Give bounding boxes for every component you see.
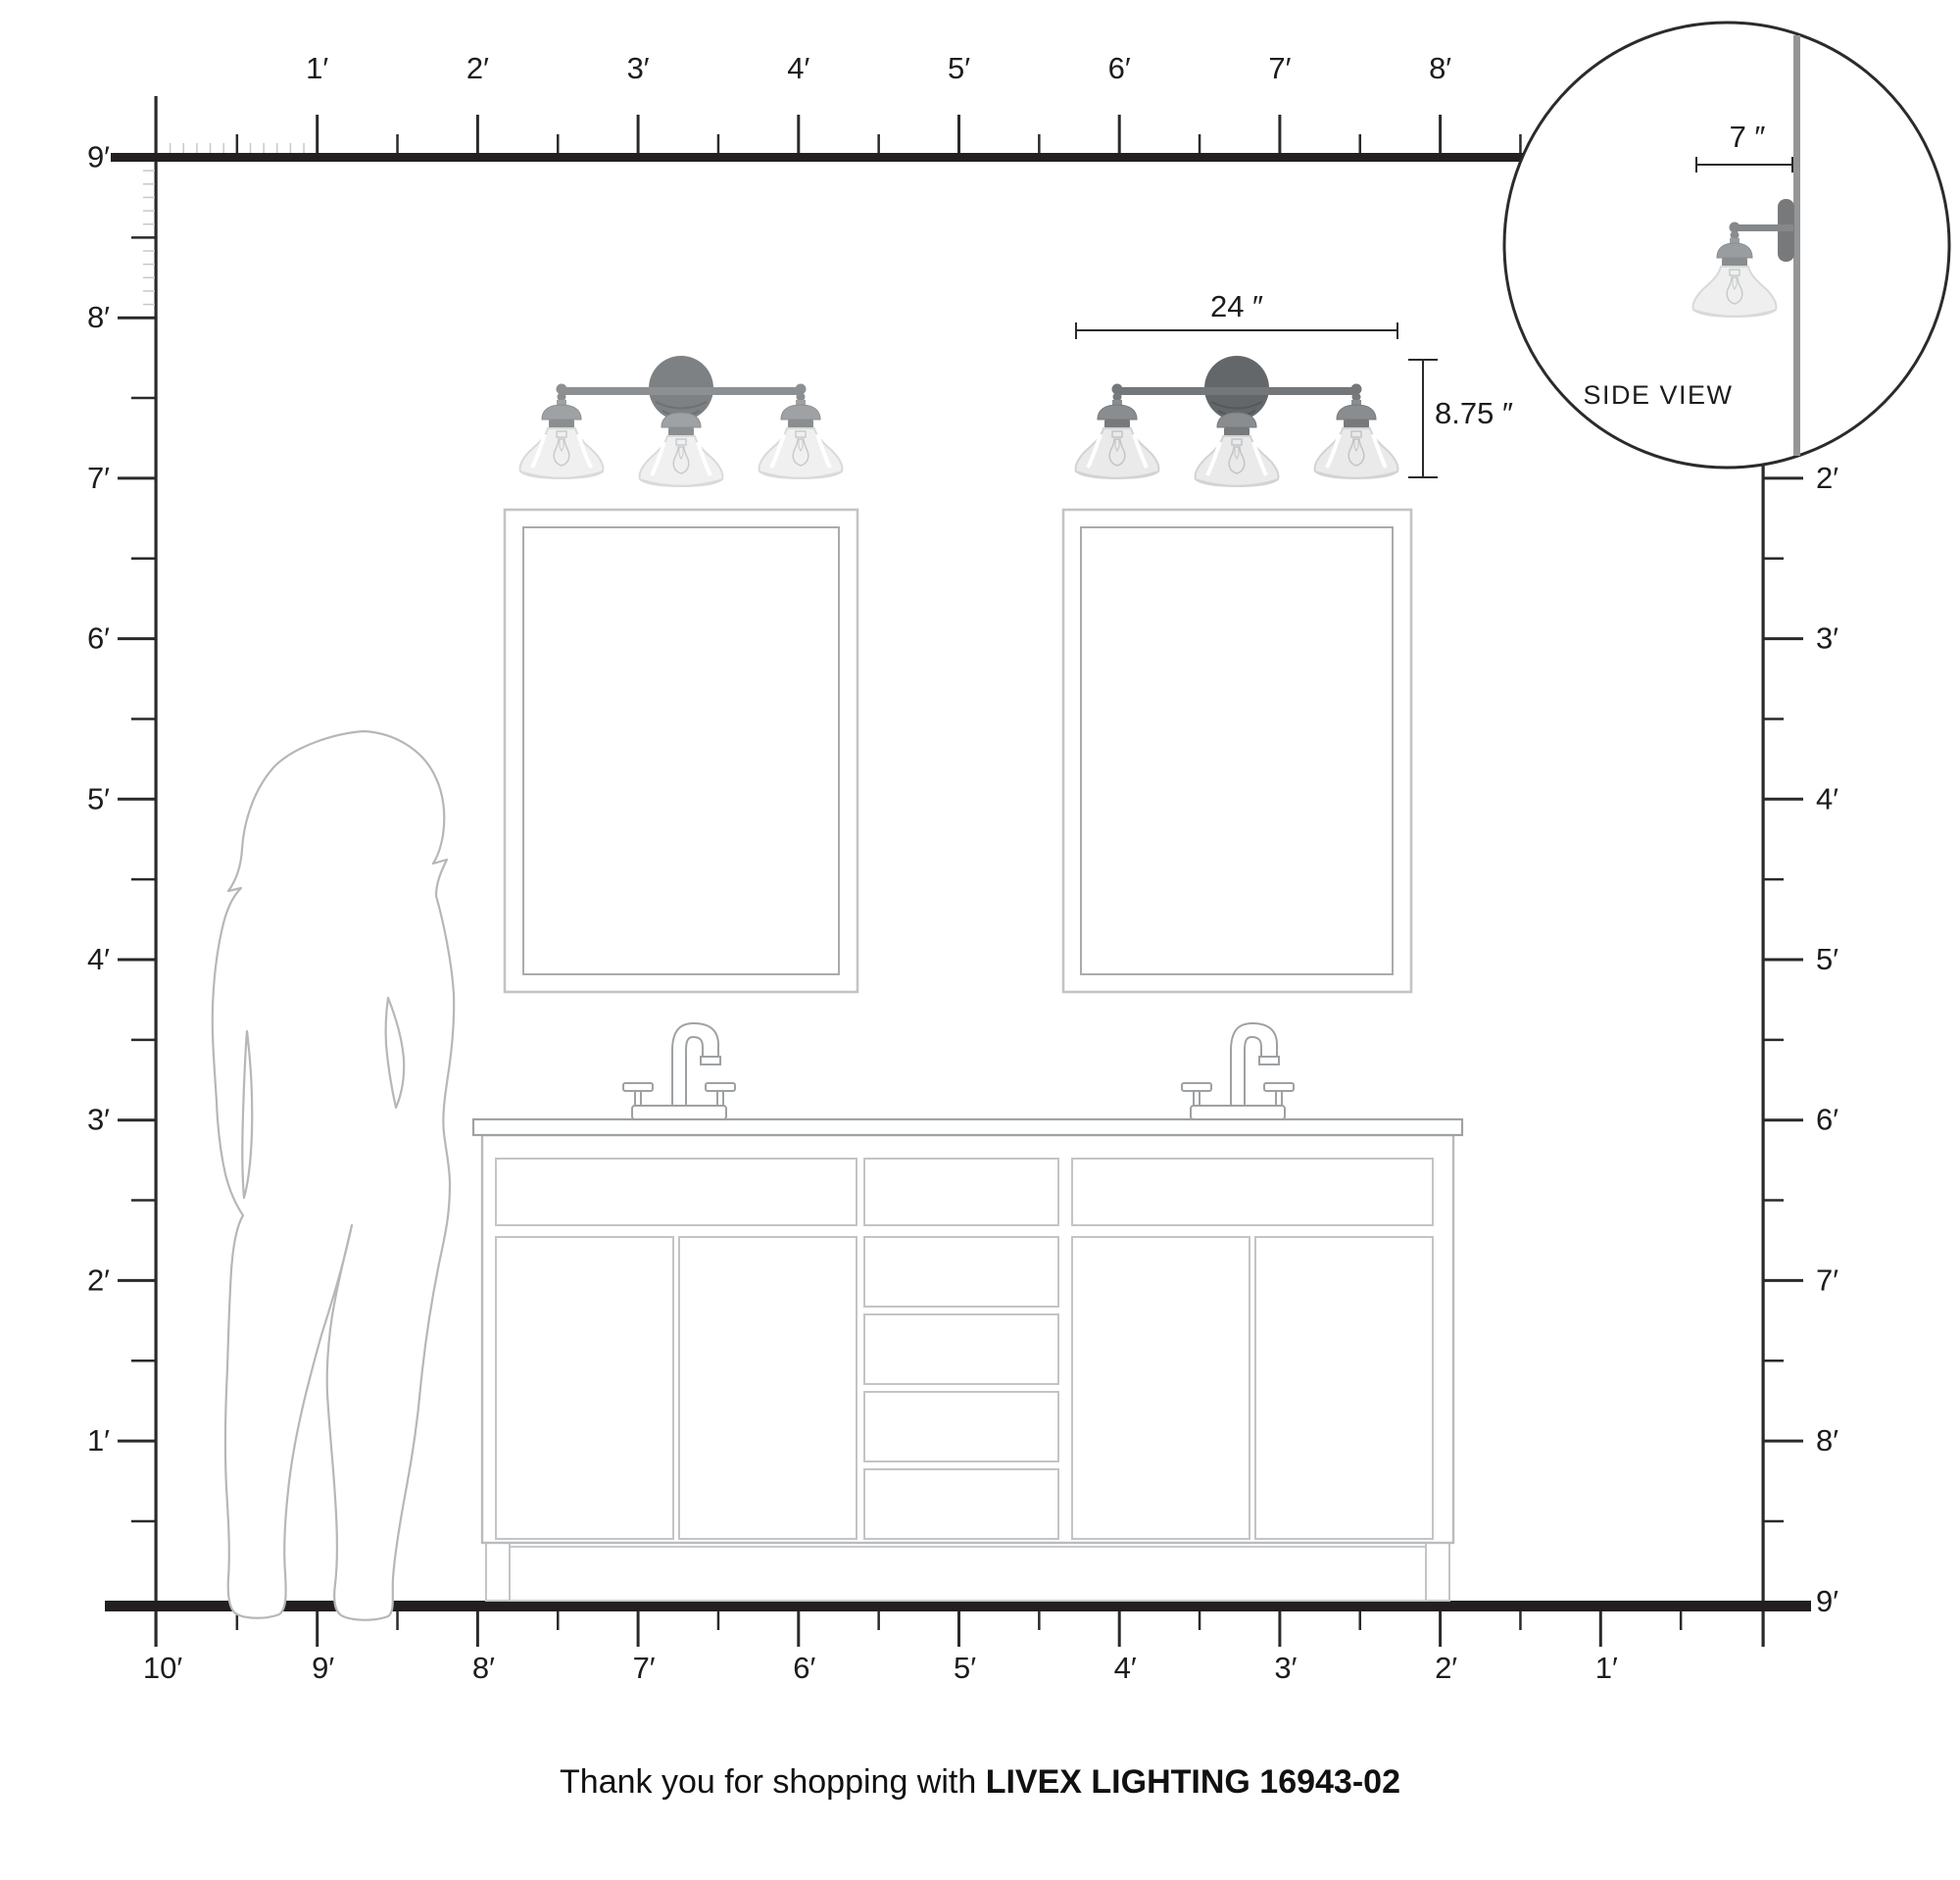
lamp-cap [1098,405,1137,420]
top-panel-left [496,1159,857,1225]
center-lamp-socket [668,427,694,436]
right-vanity-fixture [1076,356,1398,486]
lamp-socket [1104,420,1130,428]
right-ruler-label: 9′ [1816,1584,1838,1618]
faucet-base [632,1106,726,1119]
drawer-3 [864,1392,1058,1461]
bottom-ruler-label: 2′ [1435,1651,1457,1685]
bottom-ruler-label: 6′ [793,1651,815,1685]
top-ruler-label: 5′ [948,51,970,85]
lamp-cap [542,405,581,420]
top-panel-right [1072,1159,1433,1225]
lamp-cap [1337,405,1376,420]
left-ruler-label: 4′ [87,942,110,976]
faucets [623,1023,1294,1119]
width-dim-label: 24 ″ [1210,289,1263,323]
top-ruler-label: 1′ [306,51,328,85]
faucet-handle-post [1194,1090,1200,1106]
left-wall-line [155,96,158,1647]
shade-glass [1315,428,1398,478]
bell-shade [759,428,843,478]
size-diagram-page: 1′2′3′4′5′6′7′8′ 9′8′7′6′5′4′3′2′1′ 10′9… [0,0,1960,1880]
bell-shade [1196,436,1279,486]
left-ruler-label: 8′ [87,300,110,334]
bottom-ruler-label: 8′ [472,1651,495,1685]
sconce-socket [1722,258,1747,267]
top-ruler-label: 2′ [466,51,489,85]
lamp-socket [549,420,574,428]
bottom-ruler-label: 5′ [954,1651,976,1685]
shade-glass [1196,436,1279,486]
faucet-base [1191,1106,1285,1119]
countertop [473,1119,1462,1135]
person-silhouette [213,731,454,1620]
left-vanity-fixture [520,356,843,486]
shade-glass [759,428,843,478]
left-ruler-label: 3′ [87,1103,110,1137]
left-ruler: 9′8′7′6′5′4′3′2′1′ [87,140,155,1521]
footer-product-code: LIVEX LIGHTING 16943-02 [986,1763,1400,1801]
right-ruler-label: 8′ [1816,1423,1838,1458]
faucet-handle-post [635,1090,641,1106]
sconce-arm [1735,224,1793,231]
faucet-handle-post [1276,1090,1282,1106]
fixture-arm [1117,387,1356,395]
right-mirror-inner-frame [1081,527,1393,974]
fixture-arm [562,387,801,395]
bottom-ruler-label: 3′ [1274,1651,1297,1685]
door-right-2 [1255,1237,1433,1539]
faucet-aerator [1259,1057,1279,1064]
left-leg [486,1543,510,1601]
elevation-drawing: 1′2′3′4′5′6′7′8′ 9′8′7′6′5′4′3′2′1′ 10′9… [0,0,1960,1880]
bell-shade [640,436,723,486]
right-ruler-label: 4′ [1816,781,1838,816]
left-ruler-label: 9′ [87,140,110,174]
top-ruler-label: 3′ [627,51,650,85]
lamp-socket [1344,420,1369,428]
top-ruler: 1′2′3′4′5′6′7′8′ [171,51,1521,153]
top-ruler-label: 4′ [787,51,809,85]
left-faucet [623,1023,735,1119]
fixture-width-dimension: 24 ″ [1076,289,1397,339]
vanity-light-fixtures [520,356,1398,486]
lamp-cap [781,405,820,420]
bottom-ruler-label: 7′ [633,1651,656,1685]
right-ruler-label: 5′ [1816,942,1838,976]
right-mirror [1063,510,1411,992]
shade-glass [520,428,604,478]
bell-shade [1315,428,1398,478]
faucet-aerator [701,1057,720,1064]
top-ruler-label: 7′ [1268,51,1291,85]
left-ruler-label: 6′ [87,621,110,656]
right-ruler: 2′3′4′5′6′7′8′9′ [1763,461,1838,1618]
faucet-handle [1182,1083,1211,1091]
toe-kick [490,1547,1445,1601]
center-lamp-socket [1224,427,1249,436]
door-left-1 [496,1237,673,1539]
top-ruler-label: 6′ [1108,51,1131,85]
right-leg [1426,1543,1449,1601]
extension-dim-label: 7 ″ [1730,120,1766,154]
drawer-2 [864,1314,1058,1384]
bottom-ruler-label: 10′ [143,1651,182,1685]
side-view-inset: 7 ″ SIDE VIEW [1504,23,1949,468]
left-ruler-label: 7′ [87,461,110,495]
top-panel-center [864,1159,1058,1225]
height-dim-label: 8.75 ″ [1435,396,1513,430]
bell-shade [1076,428,1159,478]
faucet-handle [706,1083,735,1091]
faucet-handle [623,1083,653,1091]
left-mirror-inner-frame [523,527,839,974]
right-ruler-label: 7′ [1816,1262,1838,1297]
faucet-handle-post [717,1090,723,1106]
bottom-ruler-label: 4′ [1114,1651,1137,1685]
right-ruler-label: 3′ [1816,621,1838,656]
fixture-height-dimension: 8.75 ″ [1408,360,1513,477]
shade-glass [1076,428,1159,478]
bottom-ruler-label: 1′ [1595,1651,1618,1685]
right-faucet [1182,1023,1294,1119]
footer-caption: Thank you for shopping with LIVEX LIGHTI… [0,1763,1960,1802]
right-ruler-label: 2′ [1816,461,1838,495]
left-ruler-label: 5′ [87,781,110,816]
right-ruler-label: 6′ [1816,1103,1838,1137]
bottom-ruler-label: 9′ [312,1651,334,1685]
side-wall-line [1793,35,1800,456]
footer-regular-text: Thank you for shopping with [560,1763,976,1801]
bell-shade [520,428,604,478]
top-ruler-label: 8′ [1429,51,1451,85]
door-left-2 [679,1237,857,1539]
left-ruler-label: 1′ [87,1423,110,1458]
bottom-ruler: 10′9′8′7′6′5′4′3′2′1′ [143,1611,1681,1685]
drawer-1 [864,1237,1058,1307]
drawer-4 [864,1469,1058,1539]
door-right-1 [1072,1237,1249,1539]
side-view-label: SIDE VIEW [1583,380,1733,410]
lamp-socket [788,420,813,428]
ceiling-line [111,153,1766,162]
vanity-cabinet [473,1119,1462,1601]
left-ruler-label: 2′ [87,1262,110,1297]
left-mirror [505,510,857,992]
faucet-handle [1264,1083,1294,1091]
shade-glass [640,436,723,486]
